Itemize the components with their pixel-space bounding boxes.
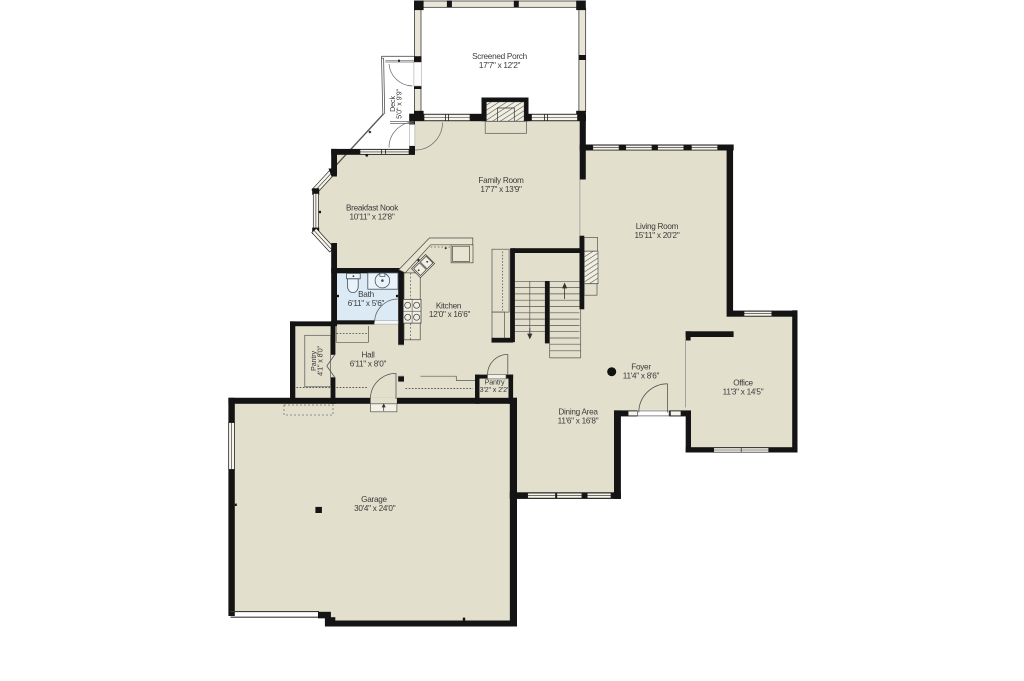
- svg-text:12'0" x 16'6": 12'0" x 16'6": [429, 310, 471, 319]
- svg-text:30'4" x 24'0": 30'4" x 24'0": [354, 504, 396, 513]
- svg-text:15'11" x 20'2": 15'11" x 20'2": [635, 231, 680, 240]
- svg-text:Foyer: Foyer: [631, 363, 651, 372]
- svg-text:Dining Area: Dining Area: [558, 407, 598, 416]
- svg-text:Kitchen: Kitchen: [436, 301, 462, 310]
- svg-text:4'1" x 8'0": 4'1" x 8'0": [316, 346, 325, 376]
- svg-text:Office: Office: [733, 379, 753, 388]
- svg-text:17'7" x 12'2": 17'7" x 12'2": [479, 61, 521, 70]
- svg-text:Garage: Garage: [361, 495, 387, 504]
- svg-text:11'6" x 16'8": 11'6" x 16'8": [558, 417, 599, 426]
- svg-text:5'0" x 9'9": 5'0" x 9'9": [395, 89, 404, 119]
- svg-text:10'11" x 12'8": 10'11" x 12'8": [350, 213, 395, 222]
- svg-text:6'11" x 8'0": 6'11" x 8'0": [350, 359, 387, 368]
- svg-text:Bath: Bath: [358, 290, 374, 299]
- svg-text:6'11" x 5'6": 6'11" x 5'6": [348, 299, 385, 308]
- svg-text:Breakfast Nook: Breakfast Nook: [346, 204, 399, 213]
- svg-text:3'2" x 2'2": 3'2" x 2'2": [480, 385, 510, 394]
- svg-text:Family Room: Family Room: [478, 176, 524, 185]
- svg-text:Living Room: Living Room: [636, 222, 679, 231]
- svg-text:17'7" x 13'9": 17'7" x 13'9": [480, 185, 522, 194]
- svg-text:Hall: Hall: [362, 351, 375, 360]
- svg-text:Screened Porch: Screened Porch: [472, 52, 528, 61]
- svg-text:11'4" x 8'6": 11'4" x 8'6": [623, 371, 660, 380]
- svg-text:11'3" x 14'5": 11'3" x 14'5": [723, 388, 764, 397]
